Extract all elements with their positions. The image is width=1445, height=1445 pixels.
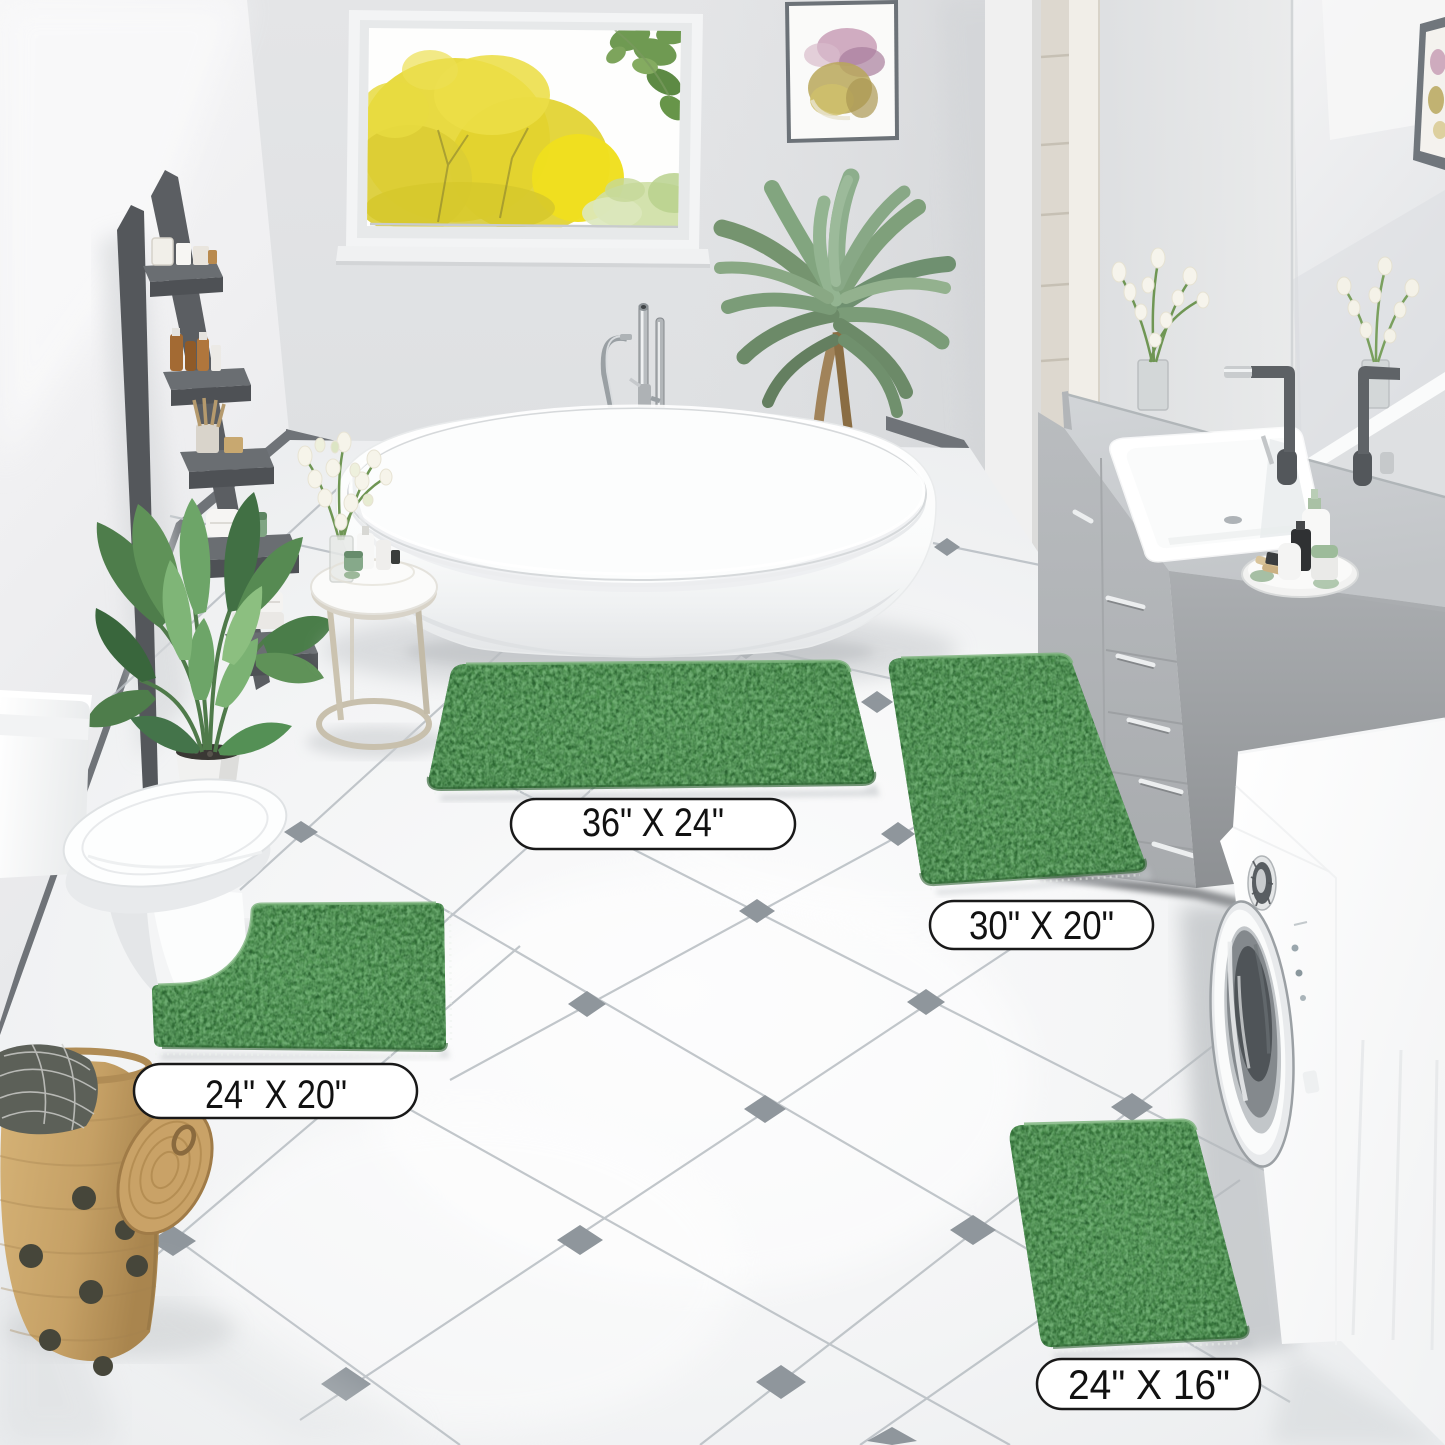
svg-text:30" X 20": 30" X 20": [969, 904, 1114, 948]
svg-text:24" X 20": 24" X 20": [205, 1073, 347, 1117]
svg-text:36" X 24": 36" X 24": [582, 801, 724, 845]
svg-text:24" X 16": 24" X 16": [1068, 1361, 1230, 1408]
